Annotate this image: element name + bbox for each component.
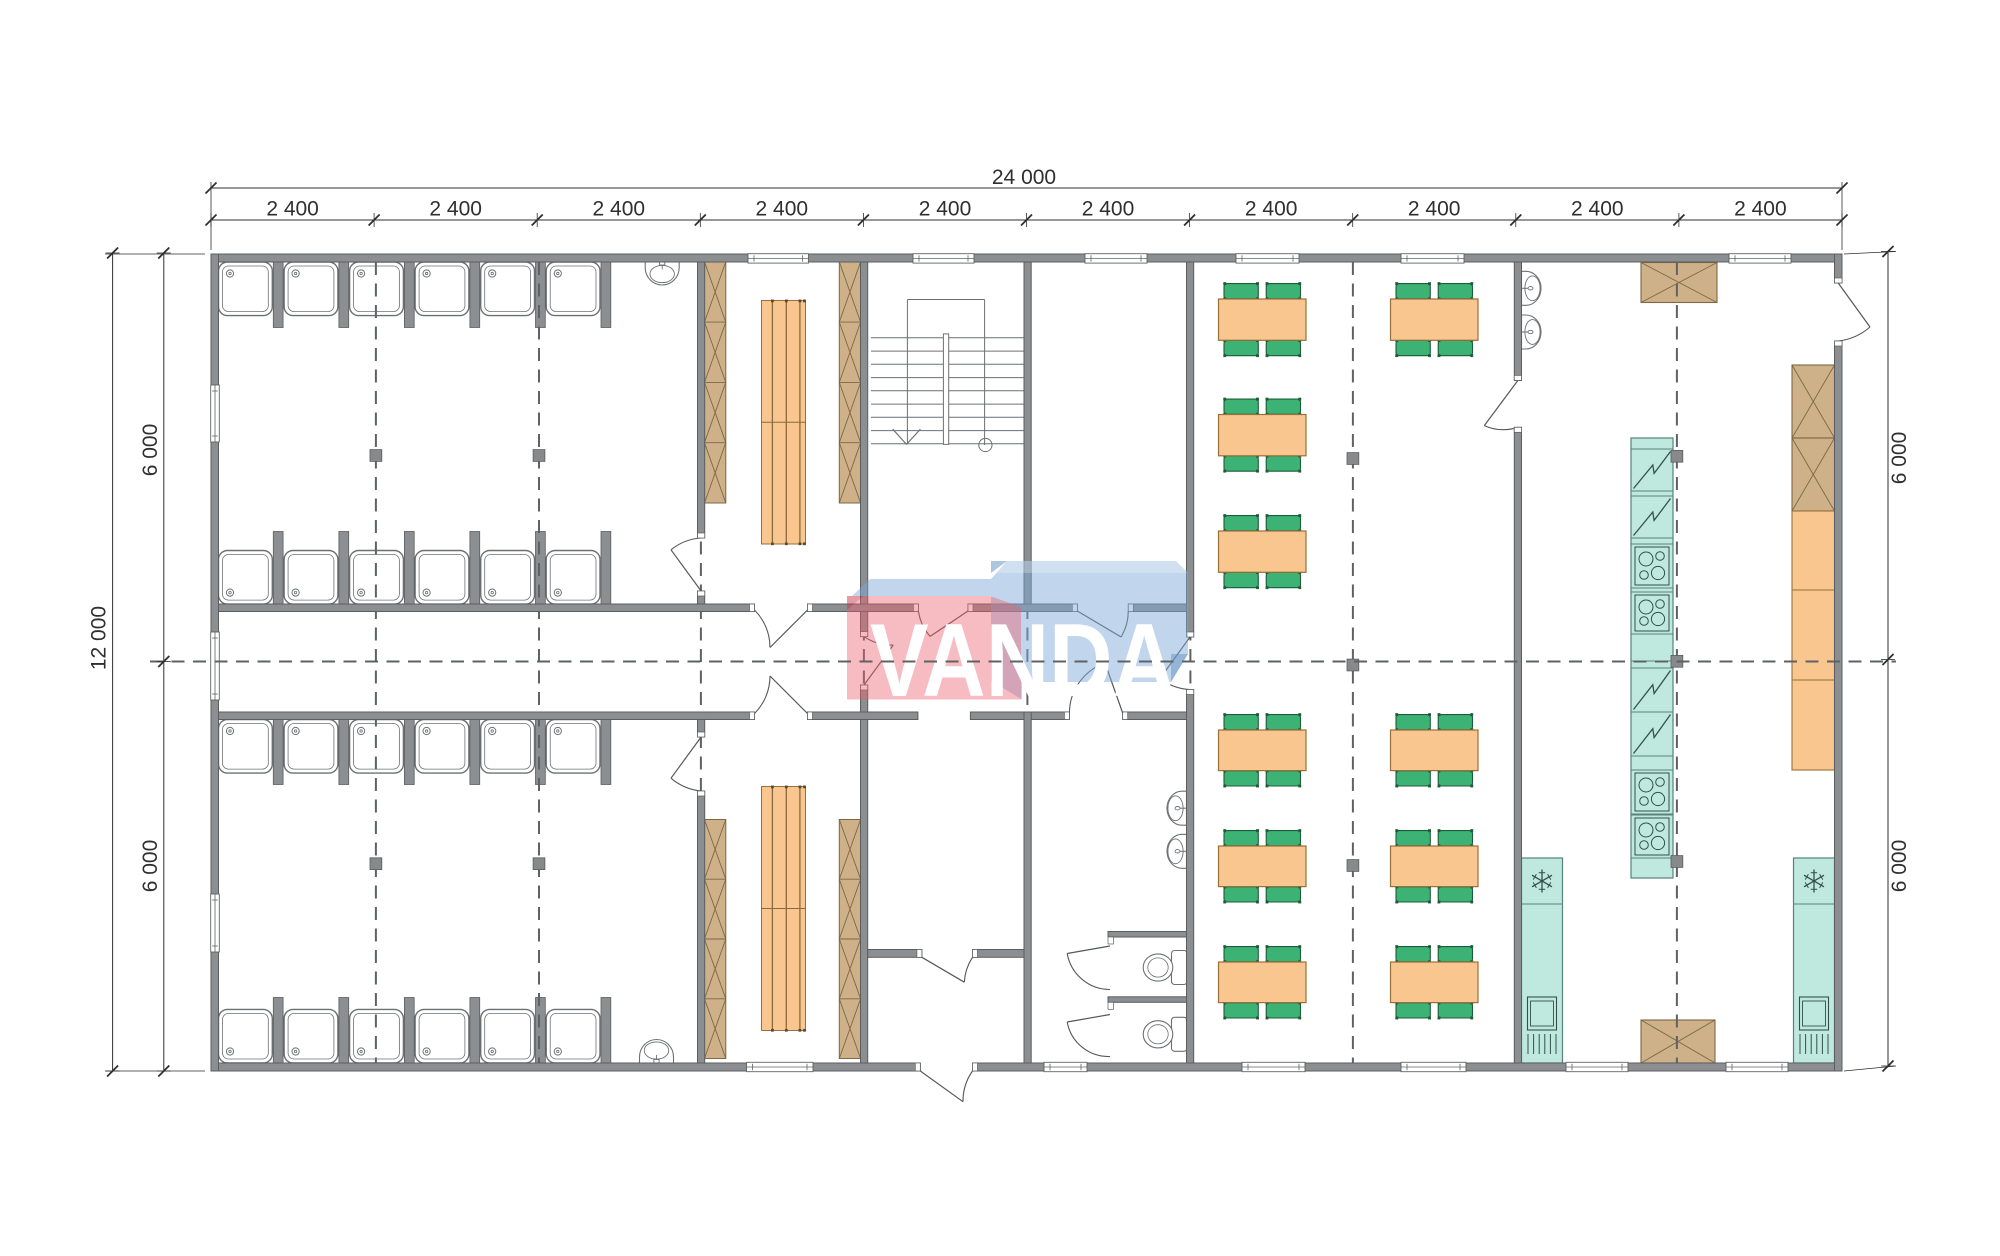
svg-text:2 400: 2 400 <box>266 198 319 221</box>
svg-text:24 000: 24 000 <box>992 166 1056 189</box>
svg-text:2 400: 2 400 <box>1408 198 1461 221</box>
svg-text:6 000: 6 000 <box>139 424 162 477</box>
svg-text:12 000: 12 000 <box>88 606 111 670</box>
svg-text:6 000: 6 000 <box>1888 432 1911 485</box>
svg-text:2 400: 2 400 <box>1082 198 1135 221</box>
svg-text:2 400: 2 400 <box>1571 198 1624 221</box>
svg-text:6 000: 6 000 <box>139 840 162 893</box>
svg-text:2 400: 2 400 <box>919 198 972 221</box>
svg-text:2 400: 2 400 <box>756 198 809 221</box>
svg-text:2 400: 2 400 <box>1734 198 1787 221</box>
svg-text:6 000: 6 000 <box>1888 840 1911 893</box>
svg-text:2 400: 2 400 <box>1245 198 1298 221</box>
svg-text:2 400: 2 400 <box>429 198 482 221</box>
svg-text:2 400: 2 400 <box>593 198 646 221</box>
